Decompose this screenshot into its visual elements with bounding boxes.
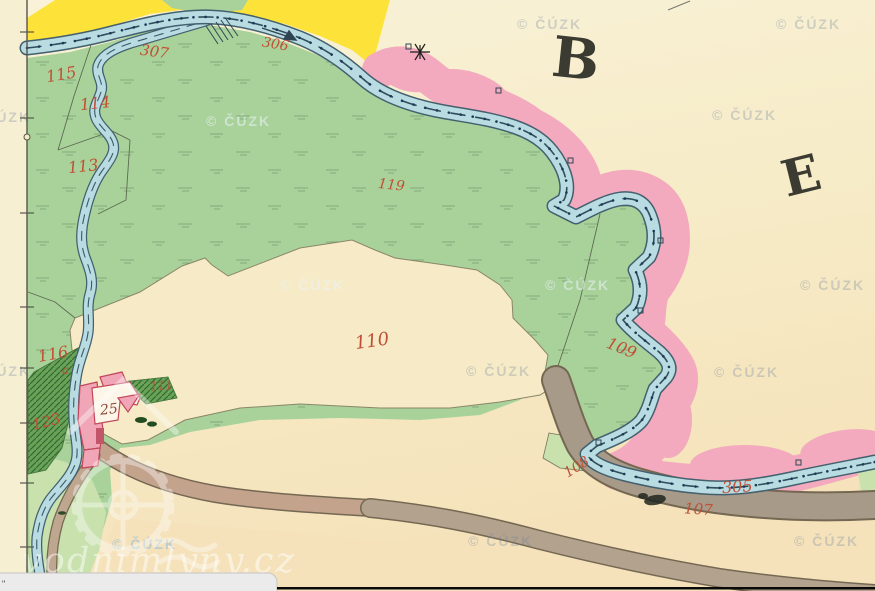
cuzk-watermark: © ČÚZK <box>517 15 582 32</box>
cuzk-watermark: © ČÚZK <box>280 276 345 293</box>
cuzk-watermark: © ČÚZK <box>466 362 531 379</box>
cuzk-watermark: © ČÚZK <box>206 112 271 129</box>
cuzk-watermark: © ČÚZK <box>776 15 841 32</box>
overlay-text: " <box>2 579 5 589</box>
parcel-label: 119 <box>377 176 405 195</box>
parcel-label: 113 <box>67 155 99 177</box>
map-viewport: 307 306 115 114 113 119 110 109 116 a 12… <box>0 0 875 591</box>
cuzk-watermark: © ČÚZK <box>545 276 610 293</box>
sheet-letter: B <box>549 24 603 95</box>
parcel-label: 305 <box>721 476 753 497</box>
cuzk-watermark: © ČÚZK <box>794 532 859 549</box>
cuzk-watermark: © ČÚZK <box>712 106 777 123</box>
cuzk-watermark: © ČÚZK <box>800 276 865 293</box>
attribution-box[interactable]: " <box>0 573 277 591</box>
parcel-label: 111 <box>149 378 173 394</box>
bottom-border <box>277 587 875 590</box>
sheet-margin <box>0 0 27 591</box>
parcel-label: 107 <box>683 499 713 519</box>
cuzk-watermark: © ČÚZK <box>714 363 779 380</box>
cuzk-watermark: © ČÚZK <box>468 532 533 549</box>
parcel-label: 114 <box>79 92 111 114</box>
map-canvas[interactable]: 307 306 115 114 113 119 110 109 116 a 12… <box>0 0 875 591</box>
parcel-label: a <box>62 363 69 377</box>
